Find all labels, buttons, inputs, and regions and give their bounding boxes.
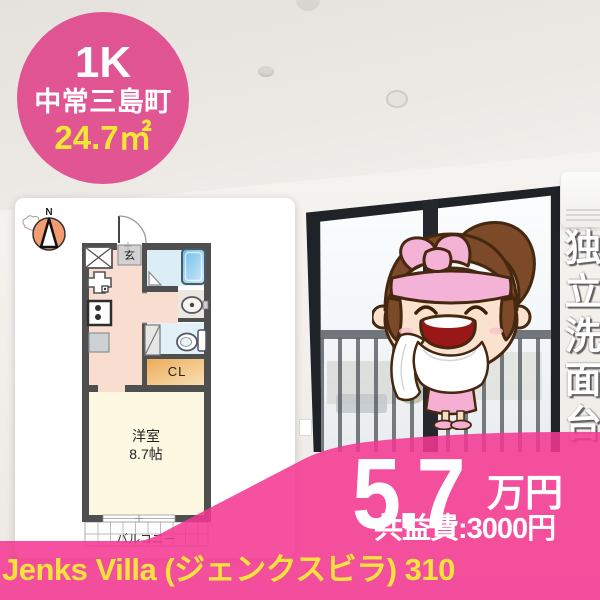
feature-ribbon: 独立洗面台 [552, 228, 598, 448]
layout-type: 1K [75, 41, 131, 85]
room-size-label: 8.7帖 [129, 446, 162, 462]
counter-icon [89, 333, 109, 352]
property-listing-image: N [0, 0, 600, 600]
hallway-area [145, 292, 178, 325]
light-switch [299, 419, 312, 436]
bow-knot [424, 249, 451, 272]
blush-right [489, 328, 503, 335]
right-slipper [451, 421, 471, 430]
air-conditioner [561, 172, 600, 227]
bathtub-icon [182, 249, 205, 284]
compass-north-label: N [45, 207, 52, 218]
price-unit: 万円 [487, 475, 563, 513]
floorplan-panel: N [15, 198, 295, 558]
washing-machine-icon [85, 247, 112, 268]
closet-label: CL [168, 364, 187, 379]
maintenance-fee: 共益費:3000円 [374, 514, 555, 546]
headband [391, 271, 511, 303]
floor-area: 24.7㎡ [54, 121, 151, 156]
open-mouth [421, 316, 476, 348]
entry-door-icon [119, 216, 146, 243]
balcony-window-symbol [103, 515, 175, 523]
entrance-box: 玄 [118, 245, 141, 265]
property-title: Jenks Villa (ジェンクスビラ) 310 [2, 553, 455, 587]
property-badge: 1K 中常三島町 24.7㎡ [17, 12, 189, 184]
balcony-label: バルコニー [116, 532, 176, 546]
floorplan: N [15, 198, 295, 558]
room-door-icon [145, 325, 160, 355]
location-name: 中常三島町 [34, 88, 172, 118]
downlight-icon [386, 90, 408, 108]
entrance-label: 玄 [124, 248, 135, 262]
mascot-character [372, 213, 542, 430]
smoke-detector-icon [258, 66, 274, 77]
compass-icon: N [23, 207, 65, 250]
stove-icon [88, 301, 111, 325]
room-name-label: 洋室 [132, 428, 160, 444]
